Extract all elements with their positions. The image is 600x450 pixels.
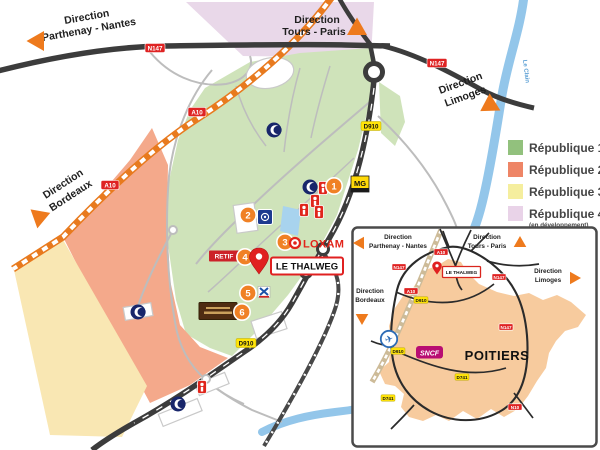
inset-badge-4: N147 <box>492 274 506 280</box>
road-badge-n147-west: N147 <box>145 44 165 53</box>
red-figure-badge-4 <box>315 206 324 219</box>
river-le-clain <box>468 0 524 242</box>
blue-square-logo <box>258 210 273 225</box>
svg-text:Tours - Paris: Tours - Paris <box>282 26 346 38</box>
svg-text:N147: N147 <box>430 60 445 67</box>
legend-label-2: République 2 <box>529 163 600 177</box>
inset-badge-8: D741 <box>381 395 395 401</box>
red-figure-badge-5 <box>198 381 207 394</box>
sncf-logo: SNCF <box>416 346 443 359</box>
svg-text:Direction: Direction <box>294 14 340 26</box>
svg-text:4: 4 <box>242 252 248 263</box>
legend-label-3: République 3 <box>529 185 600 199</box>
svg-text:LOXAM: LOXAM <box>303 239 344 251</box>
marker-2: 2 <box>240 207 256 223</box>
svg-text:D741: D741 <box>457 375 468 380</box>
svg-text:MG: MG <box>354 179 366 188</box>
svg-text:1: 1 <box>331 181 337 192</box>
zone-republique-1-east <box>379 82 405 146</box>
svg-text:N147: N147 <box>501 325 512 330</box>
legend-label-4: République 4 <box>529 207 600 221</box>
direction-parthenay: Direction Parthenay - Nantes <box>27 3 138 51</box>
inset-badge-5: N147 <box>499 324 513 330</box>
marker-6: 6 <box>234 304 250 320</box>
legend-swatch-2 <box>508 162 523 177</box>
pond <box>280 206 301 236</box>
map-canvas: N147 N147 A10 A10 D910 D910 Direction Pa… <box>0 0 600 450</box>
svg-text:D910: D910 <box>393 349 404 354</box>
direction-triangle-down <box>28 209 51 230</box>
svg-text:Direction: Direction <box>534 268 562 275</box>
svg-text:RETIF: RETIF <box>215 253 234 260</box>
brown-logo-badge <box>199 303 237 320</box>
inset-badge-3: D910 <box>414 297 428 303</box>
map-page: N147 N147 A10 A10 D910 D910 Direction Pa… <box>0 0 600 450</box>
road-badge-a10-upper: A10 <box>188 108 206 117</box>
direction-triangle-left <box>27 31 45 51</box>
svg-text:Limoges: Limoges <box>535 277 562 284</box>
legend-label-1: République 1 <box>529 141 600 155</box>
svg-text:N147: N147 <box>394 265 405 270</box>
road-badge-d910-north: D910 <box>361 122 381 131</box>
svg-text:Bordeaux: Bordeaux <box>355 297 385 304</box>
svg-text:LE THALWEG: LE THALWEG <box>276 262 338 273</box>
svg-text:D910: D910 <box>416 298 427 303</box>
svg-text:A10: A10 <box>407 289 416 294</box>
retif-badge: RETIF <box>209 251 239 262</box>
marker-5: 5 <box>240 285 256 301</box>
svg-text:D741: D741 <box>383 396 394 401</box>
svg-text:2: 2 <box>245 210 250 221</box>
svg-text:A10: A10 <box>191 109 203 116</box>
legend: République 1 République 2 République 3 R… <box>508 140 600 229</box>
svg-text:A10: A10 <box>437 250 446 255</box>
river-label: Le Clain <box>521 60 530 84</box>
zone-republique-1 <box>167 48 374 356</box>
road-badge-d910-south: D910 <box>236 339 256 348</box>
svg-text:5: 5 <box>245 288 251 299</box>
red-figure-badge-3 <box>300 204 309 217</box>
svg-text:Parthenay - Nantes: Parthenay - Nantes <box>369 243 427 250</box>
svg-text:D910: D910 <box>364 123 379 130</box>
junction-circle-1 <box>169 226 177 234</box>
svg-text:D910: D910 <box>239 340 254 347</box>
inset-badge-9: N10 <box>508 404 522 410</box>
svg-text:6: 6 <box>239 307 244 318</box>
inset-map: A10 N147 A10 D910 N147 N147 D910 D741 D7… <box>353 228 597 447</box>
svg-text:Tours - Paris: Tours - Paris <box>468 243 507 250</box>
mg-badge: MG <box>351 176 369 192</box>
marker-1: 1 <box>326 178 342 194</box>
legend-swatch-1 <box>508 140 523 155</box>
svg-text:Direction: Direction <box>384 234 412 241</box>
inset-badge-7: D741 <box>455 374 469 380</box>
legend-swatch-3 <box>508 184 523 199</box>
svg-text:N147: N147 <box>148 45 163 52</box>
inset-badge-0: A10 <box>434 249 448 255</box>
legend-swatch-4 <box>508 206 523 221</box>
svg-text:N10: N10 <box>511 405 520 410</box>
svg-text:A10: A10 <box>104 182 116 189</box>
road-badge-a10-lower: A10 <box>101 181 119 190</box>
inset-city-label: POITIERS <box>465 348 530 363</box>
road-badge-n147-east: N147 <box>427 59 447 68</box>
blue-x-logo <box>258 287 270 298</box>
inset-badge-2: A10 <box>404 288 418 294</box>
roundabout-main <box>366 64 383 81</box>
inset-badge-6: D910 <box>391 348 405 354</box>
inset-badge-1: N147 <box>392 264 406 270</box>
svg-text:SNCF: SNCF <box>420 351 440 358</box>
svg-text:N147: N147 <box>494 275 505 280</box>
airport-icon: ✈ <box>381 331 397 347</box>
svg-text:3: 3 <box>282 237 287 248</box>
svg-text:Direction: Direction <box>473 234 501 241</box>
svg-text:LE THALWEG: LE THALWEG <box>446 270 478 276</box>
svg-text:Direction: Direction <box>356 288 384 295</box>
